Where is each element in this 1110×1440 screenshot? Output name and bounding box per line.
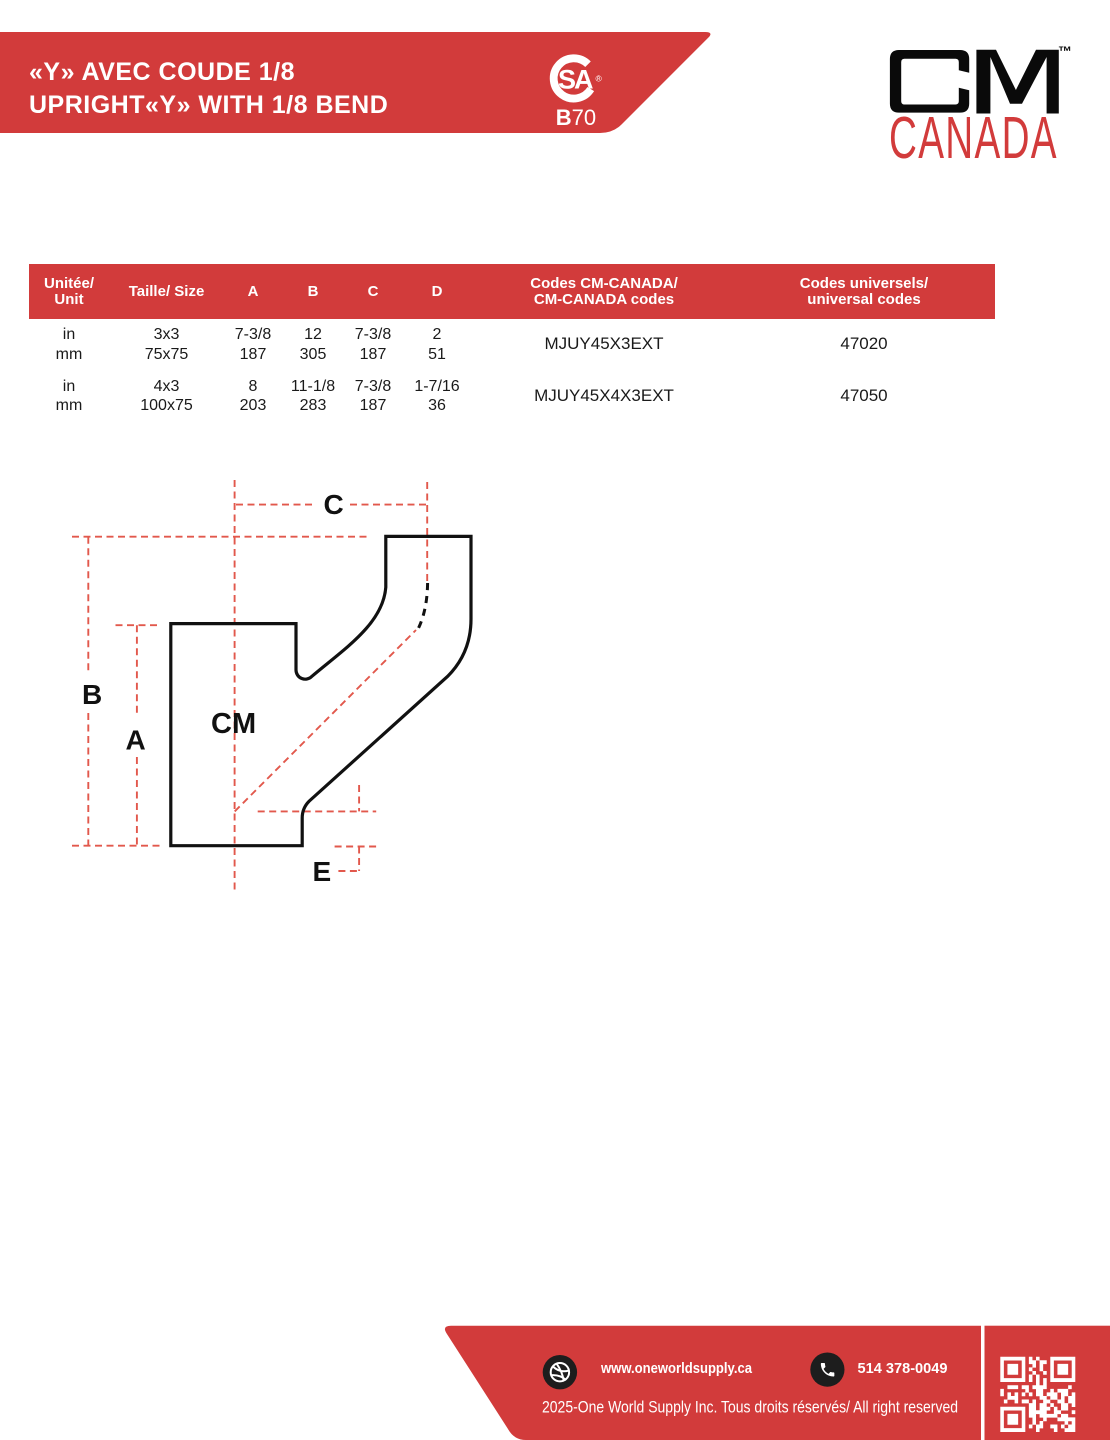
svg-text:™: ™: [1058, 43, 1072, 59]
svg-text:CM: CM: [211, 708, 256, 740]
svg-text:www.oneworldsupply.ca: www.oneworldsupply.ca: [600, 1360, 752, 1377]
svg-text:514 378-0049: 514 378-0049: [858, 1360, 948, 1377]
svg-text:SA: SA: [558, 65, 593, 95]
svg-text:A: A: [126, 724, 146, 755]
svg-text:2025-One World Supply Inc. Tou: 2025-One World Supply Inc. Tous droits r…: [542, 1398, 958, 1417]
svg-text:C: C: [324, 489, 344, 520]
svg-text:E: E: [313, 856, 332, 887]
svg-text:B70: B70: [556, 105, 596, 130]
svg-text:CANADA: CANADA: [889, 105, 1058, 165]
svg-text:®: ®: [596, 74, 603, 84]
svg-text:B: B: [82, 679, 102, 710]
